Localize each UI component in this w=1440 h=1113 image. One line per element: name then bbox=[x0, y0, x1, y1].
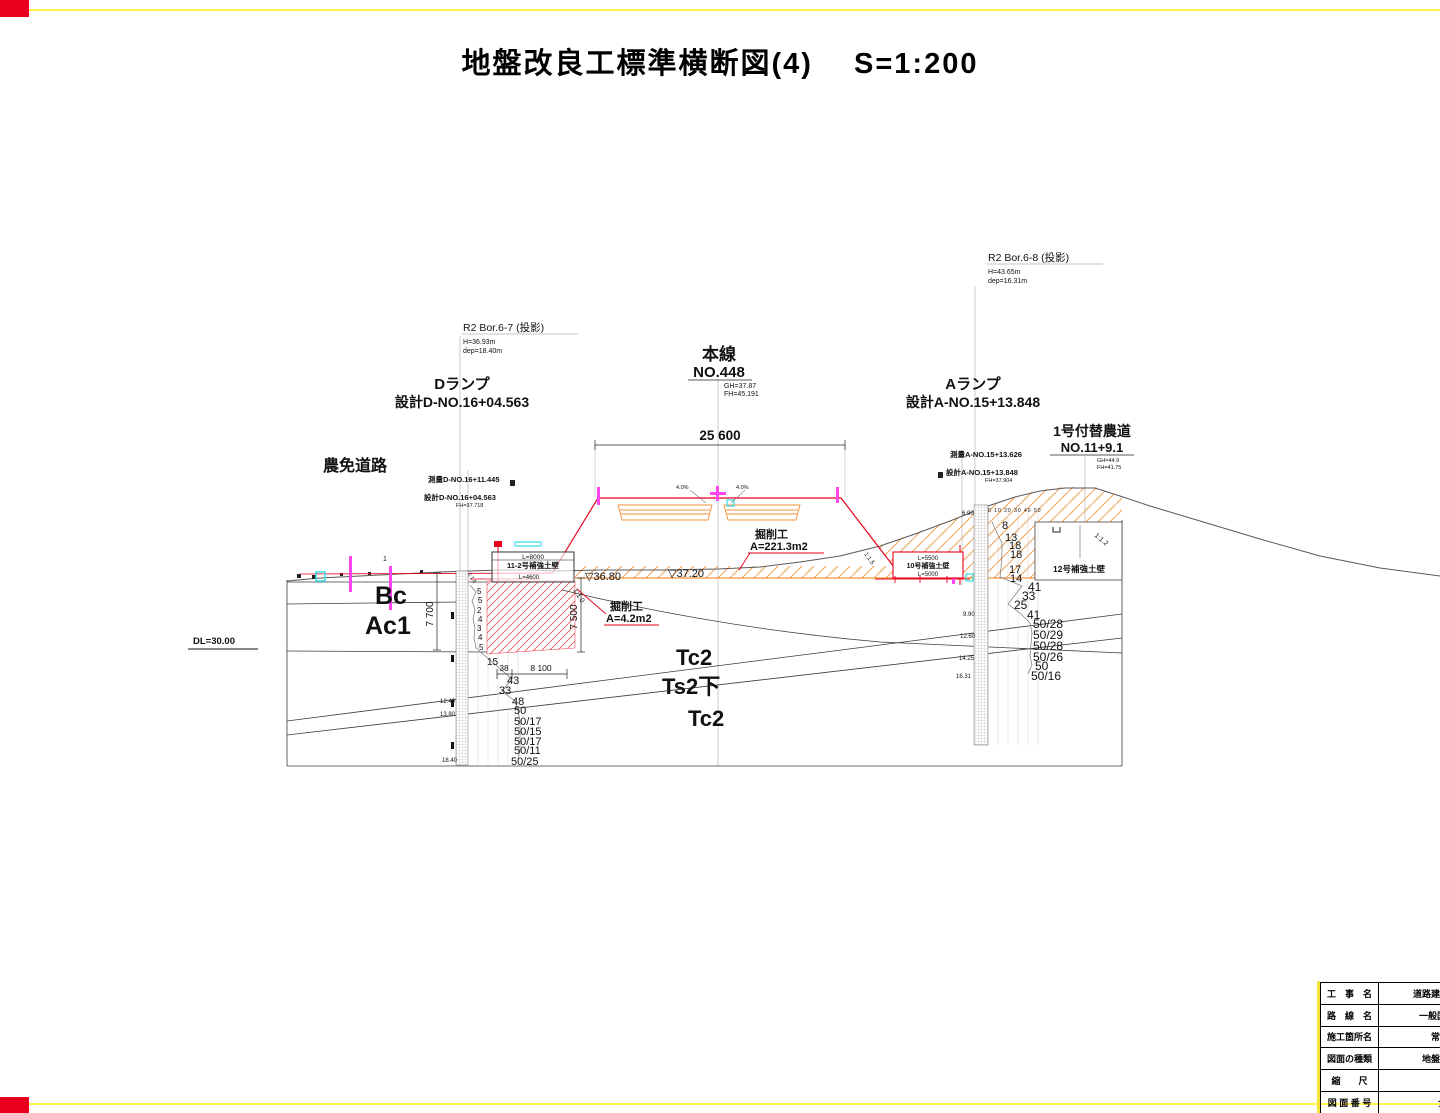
boring-68-h: H=43.65m bbox=[988, 269, 1021, 276]
title-block-value: 全 31 bbox=[1379, 1092, 1440, 1113]
title-block-value: 常滑市金 bbox=[1379, 1027, 1440, 1048]
wall-10-length-top: L=5500 bbox=[918, 556, 939, 562]
wall-11-2-length-bottom: L=4600 bbox=[519, 575, 540, 581]
pavement-layers bbox=[618, 505, 800, 520]
svg-text:50/25: 50/25 bbox=[511, 756, 539, 768]
svg-text:5: 5 bbox=[479, 643, 484, 652]
svg-text:6.90: 6.90 bbox=[962, 511, 974, 517]
d-ramp-station: 設計D-NO.16+04.563 bbox=[395, 394, 529, 410]
magenta-mark bbox=[597, 487, 600, 505]
stratum-tc2-upper: Tc2 bbox=[676, 645, 712, 670]
title-block-row: 路 線 名 一般国道247号 bbox=[1321, 1005, 1440, 1027]
farm-road-fh: FH=41.75 bbox=[1097, 465, 1121, 471]
level-36-80: ▽36.80 bbox=[585, 571, 621, 583]
wall-10-name: 10号補強土壁 bbox=[907, 561, 950, 570]
excavation-hatch bbox=[487, 581, 575, 654]
stratum-ac1: Ac1 bbox=[365, 612, 411, 640]
survey-d-label: 測量D-NO.16+11.445 bbox=[428, 474, 500, 484]
title-block: 工 事 名 道路建設工事（土 路 線 名 一般国道247号 施工箇所名 常滑市金… bbox=[1320, 982, 1440, 1113]
boring-labels: R2 Bor.6-7 (投影) H=36.93m dep=18.40m R2 B… bbox=[462, 251, 1103, 355]
stratum-ts2: Ts2下 bbox=[662, 674, 720, 699]
excavation-small-area: A=4.2m2 bbox=[606, 613, 652, 625]
main-line-fh: FH=45.191 bbox=[724, 391, 759, 398]
svg-text:1:1.5: 1:1.5 bbox=[862, 552, 875, 567]
title-block-row: 図面の種類 地盤改良工標 bbox=[1321, 1048, 1440, 1070]
excavation-small-label: 掘削工 bbox=[610, 599, 643, 613]
svg-text:14.25: 14.25 bbox=[959, 656, 975, 662]
point-1-label: 1 bbox=[383, 556, 387, 563]
svg-text:4.0%: 4.0% bbox=[736, 485, 749, 491]
title-block-row: 図 面 番 号 全 31 bbox=[1321, 1092, 1440, 1113]
title-block-label: 路 線 名 bbox=[1321, 1005, 1379, 1026]
svg-text:DL=30.00: DL=30.00 bbox=[193, 636, 235, 647]
title-block-value: S=1 bbox=[1379, 1070, 1440, 1091]
level-37-20: ▽37.20 bbox=[668, 568, 704, 580]
svg-text:50/16: 50/16 bbox=[1031, 669, 1061, 683]
boring-67-h: H=36.93m bbox=[463, 339, 496, 346]
magenta-mark bbox=[349, 556, 352, 592]
title-block-value: 地盤改良工標 bbox=[1379, 1048, 1440, 1069]
svg-text:25: 25 bbox=[1014, 598, 1028, 612]
d-ramp-name: Dランプ bbox=[434, 376, 490, 393]
svg-text:5: 5 bbox=[477, 587, 482, 596]
title-block-label: 施工箇所名 bbox=[1321, 1027, 1379, 1048]
a-ramp-station: 設計A-NO.15+13.848 bbox=[906, 394, 1040, 410]
farm-road-station: NO.11+9.1 bbox=[1061, 440, 1124, 455]
spt-scale-right: 0 10 20 30 40 50 bbox=[988, 508, 1042, 514]
title-block-label: 図面の種類 bbox=[1321, 1048, 1379, 1069]
wall-11-2-name: 11-2号補強土壁 bbox=[507, 560, 560, 570]
magenta-mark bbox=[836, 487, 839, 503]
main-line-name: 本線 bbox=[702, 344, 736, 364]
cyan-mark bbox=[515, 542, 541, 546]
svg-text:2: 2 bbox=[477, 606, 482, 615]
wall-12-name: 12号補強土壁 bbox=[1053, 564, 1105, 574]
excavation-big-area: A=221.3m2 bbox=[750, 541, 808, 553]
title-block-label: 図 面 番 号 bbox=[1321, 1092, 1379, 1113]
sheet-frame bbox=[0, 0, 1440, 1113]
title-block-row: 施工箇所名 常滑市金 bbox=[1321, 1027, 1440, 1049]
cross-section-canvas: L=8000 11-2号補強土壁 L=4600 L=5500 10号補強土壁 L… bbox=[0, 0, 1440, 1113]
title-block-value: 道路建設工事（土 bbox=[1379, 983, 1440, 1004]
depth-labels-left: 12.40 13.80 18.40 bbox=[440, 699, 458, 764]
svg-text:4.0%: 4.0% bbox=[676, 485, 689, 491]
title-block-label: 工 事 名 bbox=[1321, 983, 1379, 1004]
boring-68-dep: dep=16.31m bbox=[988, 278, 1027, 285]
drawing-sheet: 地盤改良工標準横断図(4) S=1:200 bbox=[0, 0, 1440, 1113]
nomen-road-label: 農免道路 bbox=[323, 456, 388, 475]
svg-text:5: 5 bbox=[478, 596, 483, 605]
magenta-mark bbox=[710, 492, 726, 495]
title-block-row: 縮 尺 S=1 bbox=[1321, 1070, 1440, 1092]
svg-text:12.60: 12.60 bbox=[960, 634, 976, 640]
svg-text:13.80: 13.80 bbox=[440, 712, 456, 718]
dim-8100: 8 100 bbox=[530, 663, 552, 673]
corner-mark-bottom-left bbox=[0, 1097, 29, 1113]
boring-67-name: R2 Bor.6-7 (投影) bbox=[463, 321, 544, 334]
svg-text:4: 4 bbox=[478, 615, 483, 624]
svg-text:18.40: 18.40 bbox=[442, 758, 458, 764]
title-block-label: 縮 尺 bbox=[1321, 1070, 1379, 1091]
design-a-label: 設計A-NO.15+13.848 bbox=[946, 467, 1018, 477]
svg-text:12.40: 12.40 bbox=[440, 699, 456, 705]
design-a-fh: FH=37.904 bbox=[985, 478, 1012, 484]
farm-road-gh: GH=44.9 bbox=[1097, 458, 1119, 464]
a-ramp-name: Aランプ bbox=[945, 376, 1001, 393]
svg-text:9.90: 9.90 bbox=[963, 612, 975, 618]
survey-a-label: 測量A-NO.15+13.626 bbox=[950, 449, 1022, 459]
title-block-value: 一般国道247号 bbox=[1379, 1005, 1440, 1026]
wall-10-length-bottom: L=5000 bbox=[918, 572, 939, 578]
svg-text:3: 3 bbox=[477, 624, 482, 633]
dim-7500: 7 500 bbox=[569, 604, 580, 629]
design-d-label: 設計D-NO.16+04.563 bbox=[424, 492, 496, 502]
wall-12: 12号補強土壁 1:1.2 bbox=[1035, 522, 1122, 580]
boring-68-name: R2 Bor.6-8 (投影) bbox=[988, 251, 1069, 264]
svg-text:33: 33 bbox=[499, 685, 511, 697]
svg-text:16.31: 16.31 bbox=[956, 674, 972, 680]
svg-text:14: 14 bbox=[1010, 573, 1022, 585]
stratum-bc: Bc bbox=[375, 582, 407, 610]
dim-road-width: 25 600 bbox=[699, 428, 740, 443]
farm-road-name: 1号付替農道 bbox=[1053, 423, 1131, 439]
wall-11-2: L=8000 11-2号補強土壁 L=4600 bbox=[492, 552, 574, 582]
corner-mark-top-left bbox=[0, 0, 29, 17]
stratum-tc2-lower: Tc2 bbox=[688, 706, 724, 731]
datum-label: DL=30.00 bbox=[188, 636, 258, 649]
wall-10: L=5500 10号補強土壁 L=5000 bbox=[893, 552, 963, 583]
title-block-row: 工 事 名 道路建設工事（土 bbox=[1321, 983, 1440, 1005]
main-line-gh: GH=37.87 bbox=[724, 383, 756, 390]
dim-38: 38 bbox=[499, 663, 509, 673]
excavation-big-label: 掘削工 bbox=[755, 527, 788, 541]
cyan-mark bbox=[316, 572, 325, 581]
design-d-fh: FH=37.718 bbox=[456, 503, 483, 509]
svg-text:4: 4 bbox=[478, 633, 483, 642]
wall-11-2-length-top: L=8000 bbox=[522, 554, 544, 561]
dim-7700: 7 700 bbox=[425, 601, 436, 626]
title-block-yellow-edge bbox=[1317, 981, 1320, 1113]
svg-text:8: 8 bbox=[1002, 520, 1008, 532]
main-line-station: NO.448 bbox=[693, 364, 745, 381]
boring-67-dep: dep=18.40m bbox=[463, 348, 502, 355]
svg-text:15: 15 bbox=[487, 657, 499, 668]
svg-text:18: 18 bbox=[1010, 549, 1022, 561]
